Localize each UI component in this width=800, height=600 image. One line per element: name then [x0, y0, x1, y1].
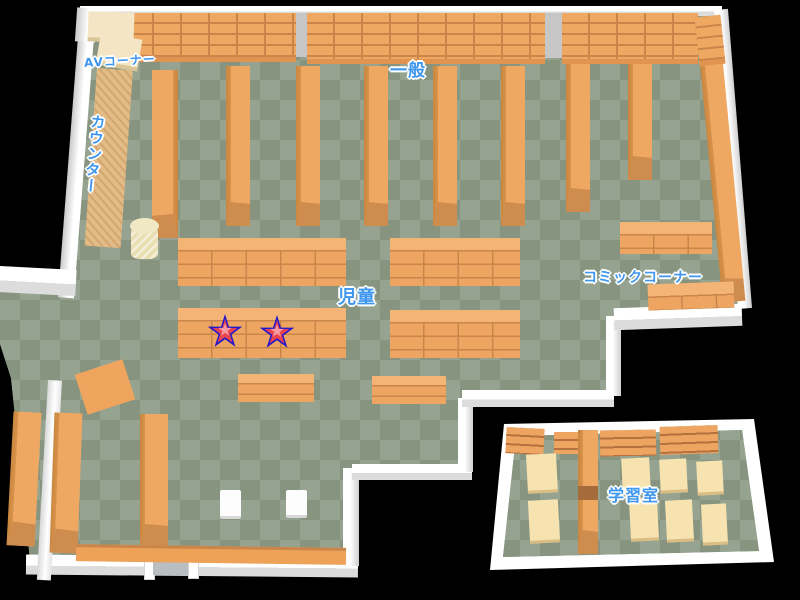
bookshelf-aisle-5	[433, 66, 457, 226]
children-shelf-row1-right	[390, 238, 520, 286]
display-cylinder-top	[130, 218, 159, 234]
children-shelf-row2-right	[390, 310, 520, 358]
entrance-jut-wall	[0, 266, 77, 296]
bookshelf-aisle-1	[152, 70, 178, 238]
study-divider-gap	[578, 486, 598, 500]
study-shelf-top-2	[660, 425, 719, 455]
entrance-gate	[153, 561, 189, 575]
library-floor-map: AVコーナー 一般 カウンター 児童 コミックコーナー 学習室	[0, 0, 800, 600]
left-bottom-shelf-2	[50, 413, 83, 554]
top-bookshelf-block-2	[307, 13, 545, 64]
star-marker-2[interactable]	[259, 315, 295, 351]
study-desk-5	[665, 499, 694, 542]
study-table-left-1	[526, 453, 558, 494]
star-marker-1[interactable]	[207, 314, 243, 350]
label-children: 児童	[338, 283, 376, 309]
bookshelf-aisle-7	[566, 64, 590, 212]
top-right-corner-shelf	[695, 15, 726, 66]
step-wall-v2	[458, 398, 473, 472]
children-shelf-row1-left	[178, 238, 346, 286]
study-desk-6	[701, 503, 728, 545]
study-shelf-left-1	[505, 427, 544, 455]
step-wall-h2	[462, 390, 614, 407]
wall-pillar-2	[545, 13, 562, 58]
label-study-room: 学習室	[608, 482, 659, 506]
bookshelf-aisle-6	[501, 66, 525, 226]
stool-2	[286, 490, 307, 518]
bookshelf-aisle-2	[226, 66, 250, 226]
picture-book-shelf-2	[372, 376, 446, 404]
left-bottom-shelf-3	[140, 414, 168, 548]
bookshelf-aisle-4	[364, 66, 388, 226]
study-desk-3	[696, 460, 724, 495]
bookshelf-aisle-3	[296, 66, 320, 226]
study-shelf-top-1	[600, 430, 656, 457]
top-bookshelf-block-3	[562, 13, 698, 64]
comic-corner-shelf	[620, 222, 712, 254]
bookshelf-aisle-8	[628, 64, 652, 180]
study-shelf-left-2	[554, 432, 578, 454]
label-comic-corner: コミックコーナー	[583, 267, 703, 287]
picture-book-shelf-1	[238, 374, 314, 402]
study-table-left-2	[528, 499, 560, 544]
stool-1	[220, 490, 241, 519]
study-desk-2	[659, 458, 688, 493]
wall-pillar-1	[296, 13, 307, 57]
step-wall-h1	[352, 464, 472, 480]
label-general: 一般	[390, 56, 426, 81]
